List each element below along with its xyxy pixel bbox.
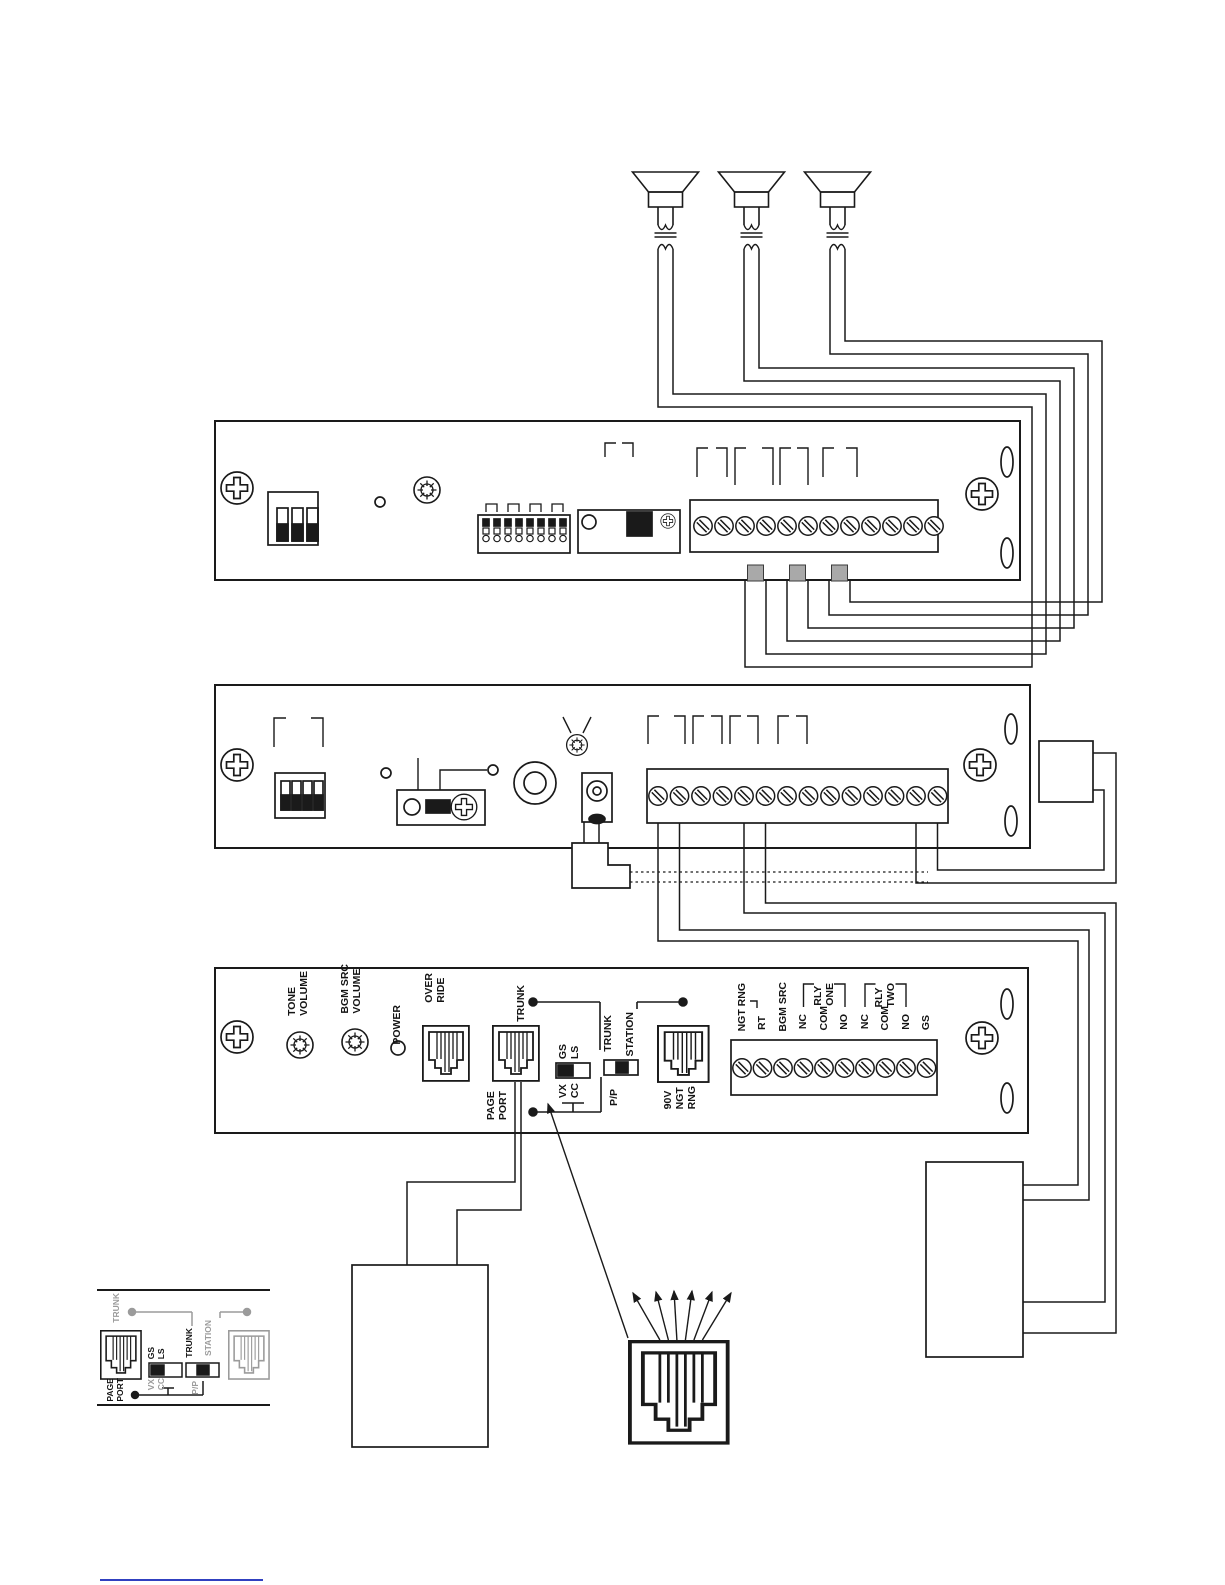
inset-label-vx-cc: VX CC	[146, 1378, 166, 1390]
inset-label-gs-ls: GS LS	[146, 1347, 166, 1359]
inset-label-page-port: PAGE PORT	[105, 1378, 125, 1402]
connector-box	[1039, 741, 1093, 802]
screw-icon	[221, 749, 253, 781]
label-station: STATION	[624, 1012, 636, 1057]
rj-plug	[548, 1104, 731, 1443]
label-terminal-gs: GS	[920, 1015, 932, 1030]
page-port-jack	[101, 1331, 141, 1379]
screw-icon	[966, 1022, 998, 1054]
label-over-ride: OVER RIDE	[423, 973, 447, 1003]
speaker-icon	[805, 172, 871, 249]
label-terminal-com2: COM	[879, 1006, 891, 1031]
board-bottom	[215, 968, 1028, 1133]
inset-label-station: STATION	[203, 1320, 213, 1356]
screw-icon	[221, 472, 253, 504]
label-terminal-no2: NO	[900, 1014, 912, 1030]
label-terminal-nc2: NC	[859, 1014, 871, 1029]
screw-icon	[964, 749, 996, 781]
wire-fan	[633, 1291, 731, 1340]
wire-insulator	[748, 565, 764, 581]
label-trunk-switch: TRUNK	[602, 1015, 614, 1052]
label-tone-volume: TONE VOLUME	[286, 971, 310, 1016]
label-rly-one: RLY ONE	[812, 983, 836, 1006]
label-terminal-bgm-src: BGM SRC	[777, 982, 789, 1032]
label-terminal-com1: COM	[818, 1006, 830, 1031]
label-vx-cc: VX CC	[557, 1083, 581, 1098]
speaker-icon	[633, 172, 699, 249]
inset-label-pp: P/P	[190, 1381, 200, 1395]
label-pp: P/P	[608, 1089, 620, 1106]
label-terminal-rt: RT	[756, 1016, 768, 1030]
external-device-box	[352, 1265, 488, 1447]
screw-icon	[221, 1021, 253, 1053]
board-top	[215, 421, 1020, 581]
label-trunk-line: TRUNK	[515, 985, 527, 1022]
label-terminal-ngt-rng: NGT RNG	[736, 983, 748, 1031]
label-terminal-nc1: NC	[797, 1014, 809, 1029]
speaker-icon	[719, 172, 785, 249]
speakers	[633, 172, 871, 249]
station-jack	[229, 1331, 269, 1379]
screw-icon	[966, 478, 998, 510]
transformer-box	[926, 1162, 1023, 1357]
board-middle	[215, 685, 1030, 848]
label-power: POWER	[391, 1005, 403, 1045]
label-bgm-volume: BGM SRC VOLUME	[339, 964, 363, 1014]
label-terminal-no1: NO	[838, 1014, 850, 1030]
wire-insulator	[790, 565, 806, 581]
power-cord-dotted	[630, 872, 928, 882]
label-90v-ngt-rng: 90V NGT RNG	[662, 1086, 698, 1109]
wire-insulator	[832, 565, 848, 581]
manual-page: TONE VOLUME BGM SRC VOLUME POWER OVER RI…	[0, 0, 1225, 1585]
inset-label-trunk-switch: TRUNK	[184, 1328, 194, 1358]
inset-label-trunk-line: TRUNK	[111, 1293, 121, 1323]
label-page-port: PAGE PORT	[485, 1091, 509, 1120]
label-gs-ls: GS LS	[557, 1044, 581, 1059]
plug-arrow	[548, 1104, 628, 1338]
label-rly-two: RLY TWO	[873, 983, 897, 1008]
